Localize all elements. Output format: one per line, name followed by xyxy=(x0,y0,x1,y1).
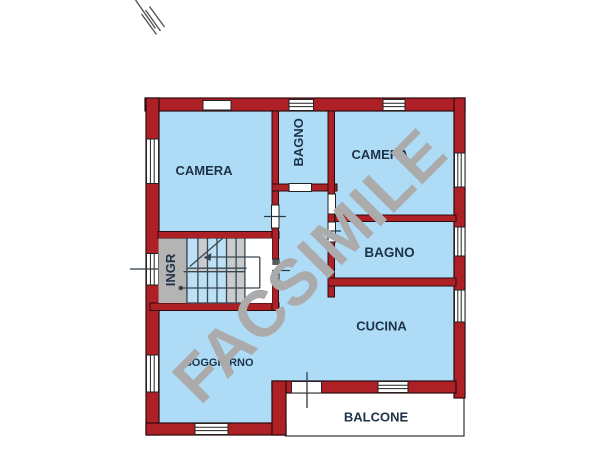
svg-text:CAMERA: CAMERA xyxy=(175,163,233,178)
svg-text:BALCONE: BALCONE xyxy=(344,410,409,425)
svg-text:BAGNO: BAGNO xyxy=(291,118,306,166)
svg-text:CUCINA: CUCINA xyxy=(356,319,407,334)
svg-text:INGR: INGR xyxy=(163,253,178,286)
